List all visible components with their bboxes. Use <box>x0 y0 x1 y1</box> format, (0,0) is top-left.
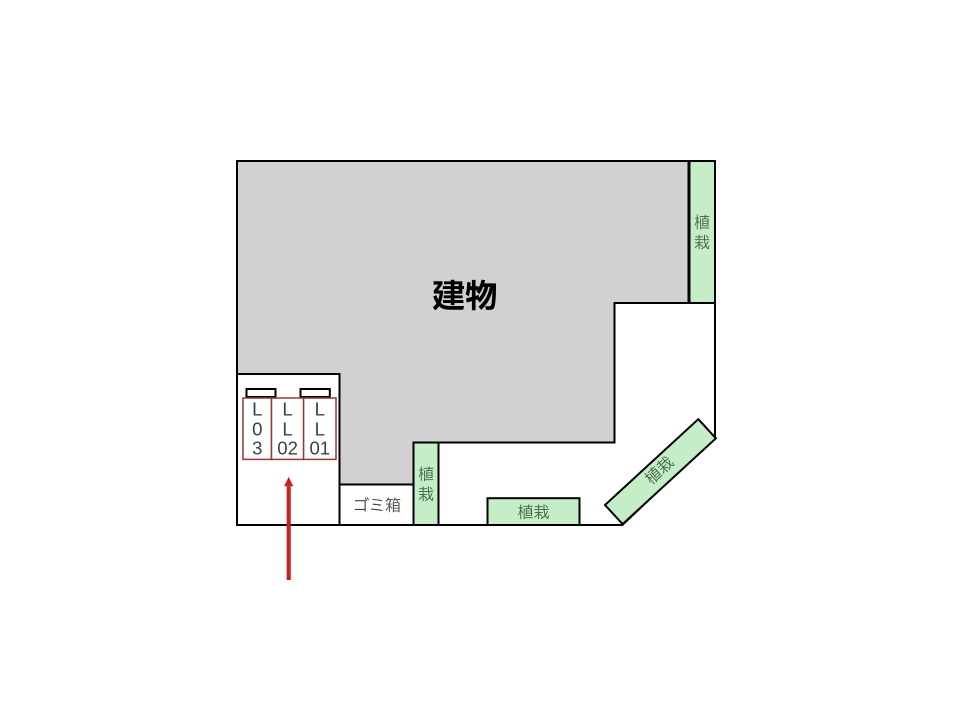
svg-text:L03: L03 <box>252 398 262 458</box>
